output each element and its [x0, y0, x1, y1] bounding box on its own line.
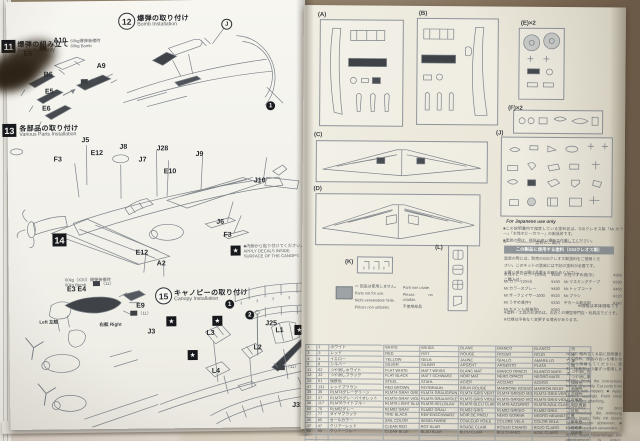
part-label: J5	[81, 137, 89, 144]
sprue-C-wing	[317, 141, 487, 182]
price-row: Mr.サーフェイサー1000¥520	[504, 293, 560, 298]
legend-not-used-text-2: Parti non usate.Piezas no usadas.不使用部品	[403, 285, 433, 311]
sprue-D-wing	[316, 194, 479, 245]
paint-info-footnotes: ※塗料・工具のお求めは、お近くの模型専門店・玩具店でどうぞ。※仕様は予告なく変更…	[504, 310, 622, 325]
part-label: A2	[157, 260, 166, 267]
sprue-box-J	[500, 137, 613, 218]
sprue-label: (A)	[318, 12, 326, 18]
price-list-col1: 水性ホビーカラー(10ml)¥180Mr.カラー(10ml)¥150Mr.カラー…	[504, 272, 560, 314]
text-line: 塗装の際には、別売のGSIクレオス製塗料をご使用くだ	[504, 256, 622, 262]
text-line: ※塗料・工具のお求めは、お近くの模型専門店・玩具店でどうぞ。	[504, 310, 622, 316]
part-label: J7	[139, 157, 147, 164]
price-row: 水性ホビーカラー(10ml)¥180	[504, 272, 560, 277]
sprue-label: (J)	[496, 131, 503, 137]
price-row: Mr.トップコート¥460	[564, 286, 622, 291]
price-row: Mr.うすめ液(中)¥330	[504, 300, 560, 305]
price-value: ¥330	[551, 300, 560, 305]
sprue-box-B	[416, 18, 499, 126]
text-line: ＝ 部品は使用しません。	[355, 283, 401, 288]
part-label: A9	[97, 63, 106, 70]
side-label-right: 右舷 Right	[99, 322, 121, 328]
price-row: Mr.マスキングテープ¥280	[564, 279, 622, 284]
part-label: E9	[136, 303, 145, 310]
sprue-K-parts	[358, 257, 392, 272]
empty-cell	[532, 436, 569, 441]
part-label: J3	[147, 328, 155, 335]
paint-color-table: 11ホワイトWHITEWEISSBLANCBIANCOBLANCO白33レッドR…	[304, 344, 591, 441]
step12-title-en: Bomb Installation	[137, 21, 177, 27]
price-value: ¥480	[551, 286, 560, 291]
instruction-page-right: ＝ 部品は使用しません。Parts not for use.Nicht verw…	[301, 5, 626, 432]
price-value: ¥460	[613, 286, 622, 291]
sprue-L-parts	[449, 246, 468, 310]
part-label: J6	[216, 219, 224, 226]
paint-chip-label: 〈11〉	[101, 281, 114, 286]
price-item: Mr.トップコート	[564, 286, 593, 291]
price-value: ¥150	[551, 279, 560, 284]
gray-part-legend-chip	[336, 286, 353, 299]
japan-only-label: For Japanese use only	[506, 219, 556, 224]
step13-tab: 13	[2, 124, 16, 137]
star-note-icon: ★	[231, 246, 241, 256]
photo-of-instruction-sheets: 11 爆弾の組み立て Bomb Assembly 12 爆弾の取り付け Bomb…	[0, 0, 640, 441]
text-line: Nicht verwendete Teile.	[355, 297, 401, 302]
text-line: NOTE: Study the instructions before asse…	[566, 378, 622, 403]
price-value: ¥360	[613, 272, 622, 277]
side-label-left: Left 左舷	[39, 319, 58, 325]
price-row: Mr.カラー(10ml)¥150	[504, 279, 560, 284]
text-line: NOTE: Avant l'assemblage, lire attentive…	[565, 432, 621, 441]
star-paint-marker: ★	[166, 316, 176, 326]
part-label: L1	[275, 327, 283, 334]
price-item: Mr.カラー(10ml)	[504, 279, 532, 284]
price-value: ¥220	[613, 293, 622, 298]
price-row: Mr.ブラシ¥220	[564, 293, 622, 298]
price-item: Mr.マスキングテープ	[564, 279, 600, 284]
sprue-F-parts	[514, 111, 602, 134]
part-label: E6	[42, 106, 51, 113]
part-label: J10	[254, 177, 266, 184]
part-label: F3	[223, 232, 231, 239]
part-label: E10	[164, 168, 177, 175]
price-row: 水性うすめ液(中)¥360	[564, 272, 622, 277]
step15-title-en: Canopy Installation	[174, 296, 218, 302]
step12-number: 12	[118, 13, 135, 30]
sprue-J-parts	[501, 138, 612, 217]
paint-chip	[278, 365, 285, 370]
numbered-marker: 2	[245, 310, 254, 319]
text-line: さい。このキットの塗装には下記の塗料が必要です。	[504, 263, 622, 269]
part-label: L4	[212, 368, 220, 375]
sprue-label: (C)	[314, 132, 322, 138]
text-line: Pièces non utilisées.	[355, 304, 401, 309]
sprue-B-parts	[417, 19, 498, 125]
sprue-label: (F)×2	[508, 106, 523, 112]
text-line: Parts not for use.	[355, 290, 401, 295]
part-label: E12	[91, 150, 104, 157]
price-item: 水性ホビーカラー(10ml)	[504, 272, 546, 277]
paint-chip-label: 〈11〉	[138, 310, 151, 315]
part-label: F3	[54, 156, 62, 163]
step15-number: 15	[155, 287, 172, 304]
numbered-marker: 1	[225, 300, 234, 309]
sprue-E-parts	[519, 29, 564, 99]
paint-info-header-bar: この製品に使用する塗料（GSIクレオス製）	[504, 246, 614, 255]
price-item: Mr.うすめ液(中)	[504, 300, 531, 305]
text-line: ACHTUNG: Vor dem Zusammenbau die Anleitu…	[566, 405, 622, 430]
sprue-label: (B)	[419, 11, 427, 17]
paint-chip	[130, 311, 137, 316]
text-line: ■この説明書内で指定している塗料名は、GSIクレオス製「Mr.カラー」「水性ホビ…	[503, 226, 623, 237]
step12-bomb-installation-drawing	[116, 29, 303, 115]
sprue-label: (K)	[345, 259, 353, 265]
circled-letter-marker: J	[221, 19, 232, 30]
paint-chip-label: 〈1〉	[89, 78, 100, 83]
sprue-label: (E)×2	[521, 21, 536, 27]
sprue-box-C	[316, 140, 488, 183]
multilingual-cautions: NOTE: 組み立てる前に説明書をよく読み、部品の合いを確かめてから接着してくだ…	[565, 351, 622, 441]
part-label: J25	[265, 320, 277, 327]
price-value: ¥520	[551, 293, 560, 298]
price-tail-note: ※価格は本体価格です	[578, 303, 619, 309]
legend-not-used-text: ＝ 部品は使用しません。Parts not for use.Nicht verw…	[355, 283, 401, 311]
text-line: NOTE: 組み立てる前に説明書をよく読み、部品の合いを確かめてから接着してくだ…	[566, 351, 622, 376]
instruction-page-left: 11 爆弾の組み立て Bomb Assembly 12 爆弾の取り付け Bomb…	[6, 0, 309, 430]
bomb-note-en: 60kg Bomb	[70, 43, 91, 48]
price-item: Mr.サーフェイサー1000	[504, 293, 545, 298]
price-value: ¥280	[613, 279, 622, 284]
sprue-box-D	[315, 193, 480, 246]
decal-note-line: SURFACE OF THE CANOPY.	[244, 253, 300, 259]
sprue-box-F	[513, 110, 603, 135]
numbered-marker: 1	[266, 101, 275, 110]
text-line: ※仕様は予告なく変更する場合があります。	[504, 317, 622, 323]
part-label: J8	[119, 144, 127, 151]
text-line: Parti non usate.	[403, 285, 433, 290]
text-line: Piezas no usadas.	[403, 292, 433, 302]
price-row: Mr.カラースプレー¥480	[504, 286, 560, 291]
sprue-label: (D)	[314, 186, 322, 192]
price-item: Mr.カラースプレー	[504, 286, 536, 291]
paint-chip	[81, 79, 88, 84]
part-label: B6	[44, 72, 53, 79]
part-label: E3 E4	[67, 286, 86, 293]
sprue-box-E	[518, 28, 565, 100]
part-label: L3	[206, 330, 214, 337]
sprue-box-A	[319, 19, 404, 127]
step14-tab: 14	[52, 233, 66, 246]
price-list-col2: 水性うすめ液(中)¥360Mr.マスキングテープ¥280Mr.トップコート¥46…	[564, 272, 622, 307]
part-label: E5	[45, 89, 54, 96]
price-item: 水性うすめ液(中)	[564, 272, 594, 277]
part-label: J28	[157, 145, 169, 152]
sprue-label: (L)	[435, 245, 443, 251]
price-item: Mr.ブラシ	[564, 293, 581, 298]
part-label: A10	[53, 37, 66, 44]
part-label: L2	[254, 344, 262, 351]
text-line: 不使用部品	[403, 304, 433, 309]
part-label: E12	[136, 250, 149, 257]
sprue-box-K	[357, 256, 393, 273]
sprue-box-L	[448, 245, 469, 311]
star-paint-marker: ★	[188, 350, 198, 360]
part-label: J9	[196, 151, 204, 158]
price-value: ¥180	[551, 272, 560, 277]
scissors-icon: ✂	[503, 240, 507, 245]
sprue-A-parts	[320, 20, 403, 126]
paint-chip	[93, 281, 100, 286]
star-paint-marker: ★	[212, 316, 222, 326]
paint-chip-label: 〈11〉	[286, 364, 299, 369]
paint-divider: ────── 塗料のご案内 ──────	[516, 240, 579, 246]
